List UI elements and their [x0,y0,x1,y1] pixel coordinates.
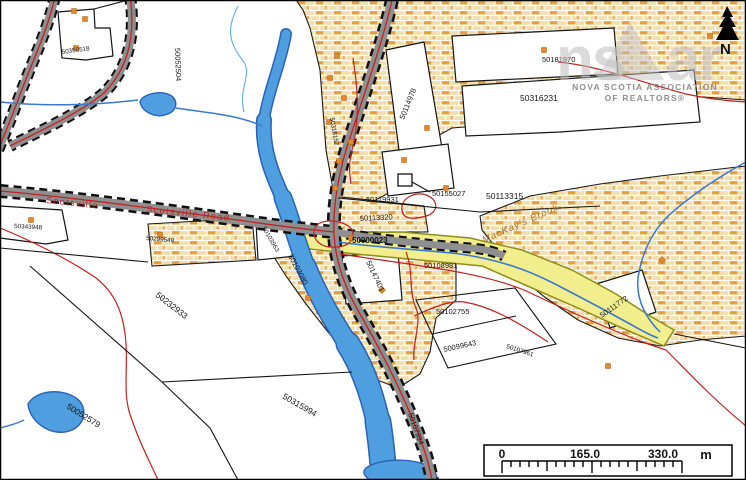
parcel-label-50113315: 50113315 [486,191,523,201]
scale-unit-label: m [700,447,712,462]
parcel-label-50113320: 50113320 [360,212,393,223]
scale-mid-label: 165.0 [570,447,600,461]
parcel-label-50108981: 50108981 [424,261,457,270]
highlight-parcel-label: 50000023 [352,236,388,245]
parcel-label-50155027: 50155027 [432,189,465,198]
map-canvas: 50350518 50052504 50114978 50181970 5031… [0,0,746,480]
north-label: N [720,41,731,58]
parcel-label-50316231: 50316231 [520,93,558,103]
parcel-label-50102755: 50102755 [436,307,469,316]
scale-max-label: 330.0 [648,447,678,461]
scale-zero-label: 0 [499,447,506,461]
watermark-line2: OF REALTORS® [605,93,686,103]
watermark-line1: NOVA SCOTIA ASSOCIATION [572,82,718,92]
property-map[interactable]: 50350518 50052504 50114978 50181970 5031… [0,0,746,480]
survey-monument-box [398,174,412,186]
parcel-label-50052504: 50052504 [173,48,183,82]
scale-bar: 0 165.0 330.0 m [484,445,732,476]
parcel-label-50343948: 50343948 [14,223,43,231]
parcel-label-50119931: 50119931 [366,195,399,204]
